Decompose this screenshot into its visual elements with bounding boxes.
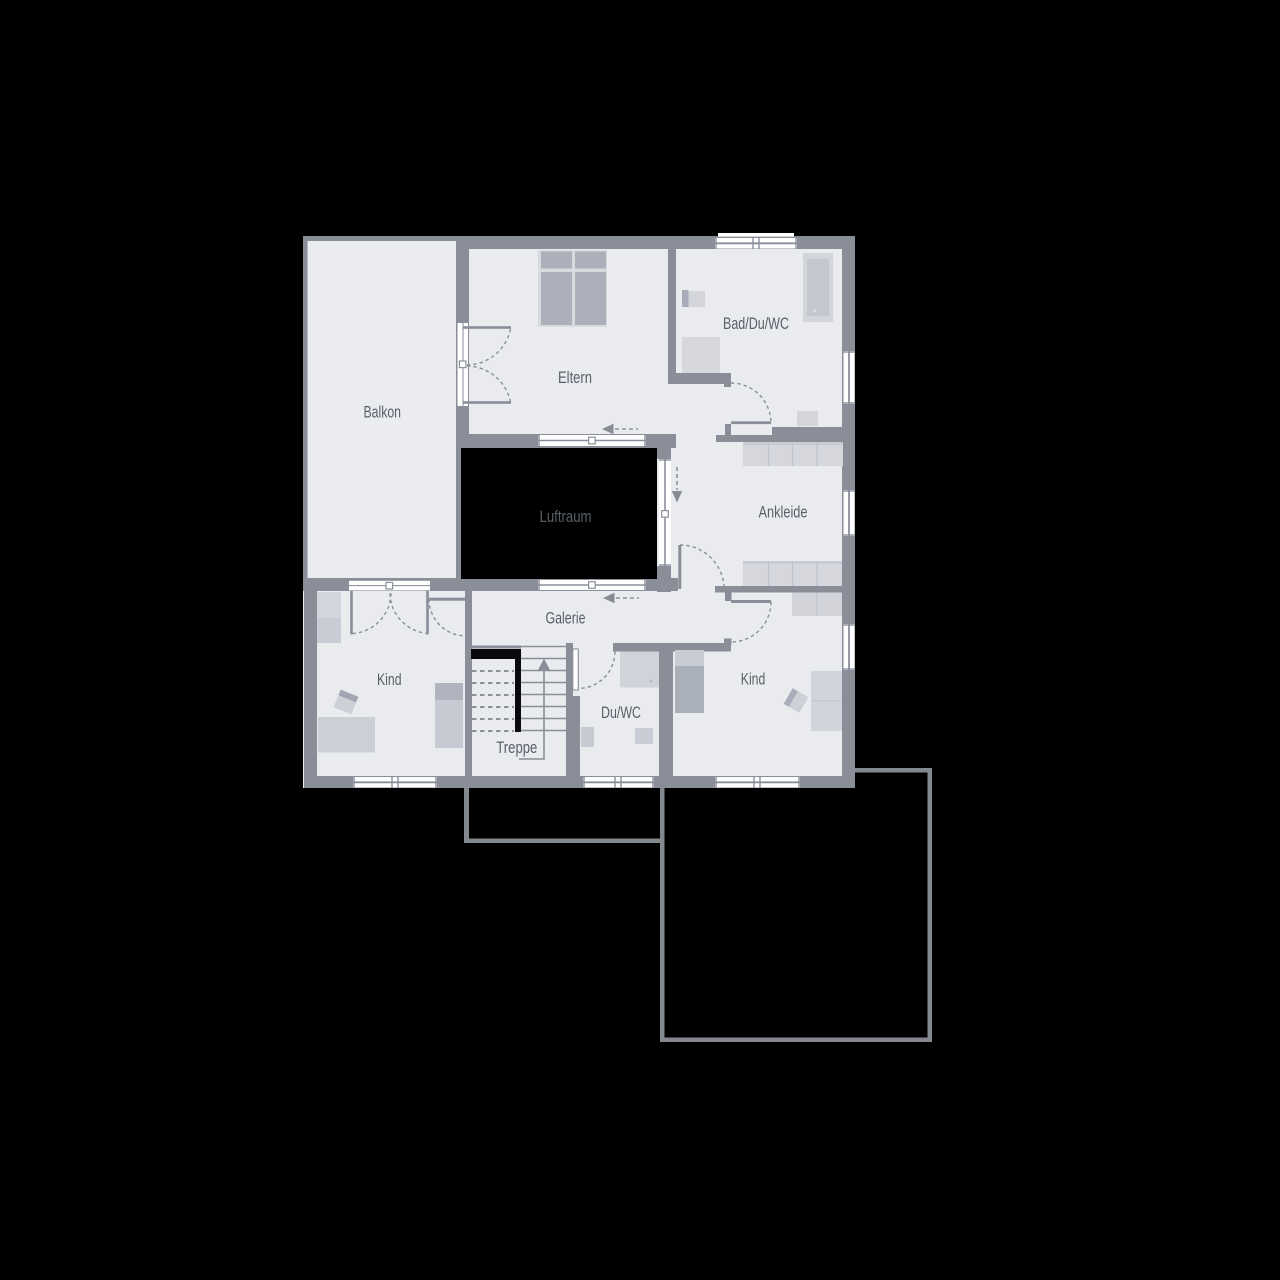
svg-text:Bad/Du/WC: Bad/Du/WC	[723, 315, 789, 333]
svg-text:Ankleide: Ankleide	[759, 504, 808, 522]
svg-text:Kind: Kind	[741, 671, 766, 689]
svg-text:Galerie: Galerie	[546, 610, 586, 628]
svg-text:Du/WC: Du/WC	[601, 704, 641, 722]
svg-text:Balkon: Balkon	[364, 403, 402, 421]
svg-text:Treppe: Treppe	[496, 739, 537, 757]
svg-text:Eltern: Eltern	[558, 369, 592, 387]
svg-text:Luftraum: Luftraum	[540, 508, 592, 526]
svg-text:Kind: Kind	[377, 671, 402, 689]
